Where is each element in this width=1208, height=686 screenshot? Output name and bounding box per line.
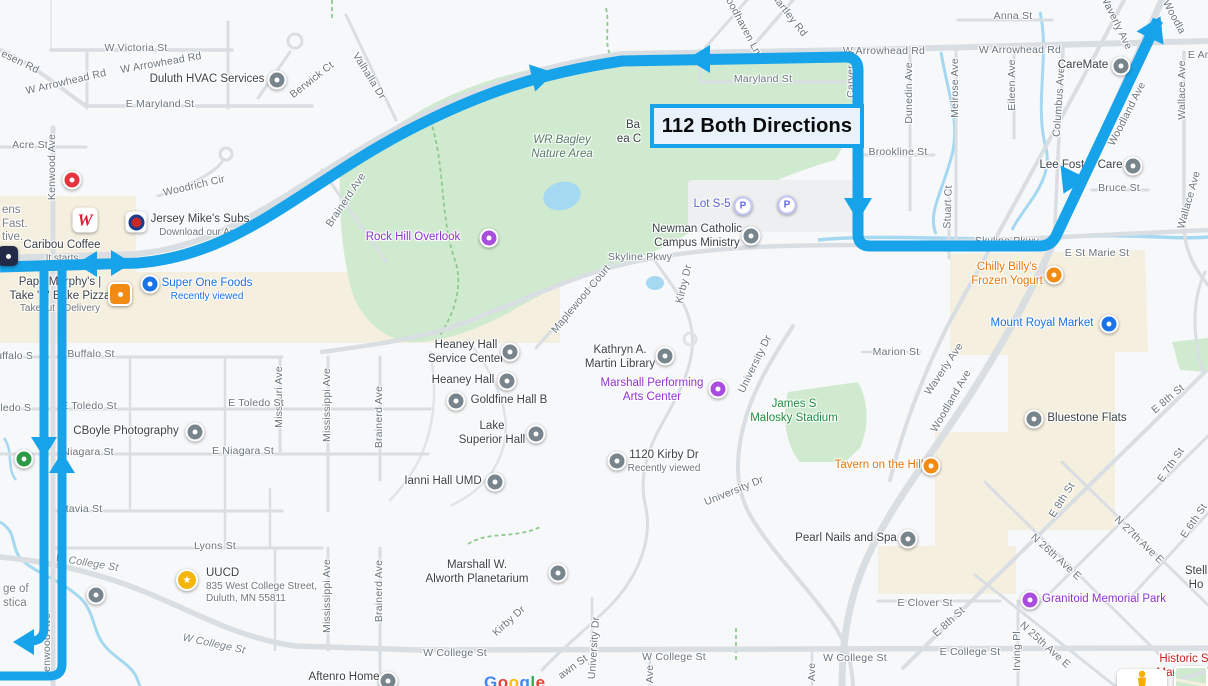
street-label: E 8th St — [1149, 382, 1187, 416]
pins-layer: ★WPP — [0, 0, 1208, 686]
poi-pin[interactable] — [899, 530, 918, 549]
street-label: Kenwood Ave — [41, 613, 53, 679]
google-watermark: Google — [484, 673, 546, 686]
street-label: W Arrowhead Rd — [25, 67, 108, 97]
poi-label[interactable]: Granitoid Memorial Park — [1042, 593, 1166, 607]
poi-label[interactable]: Aftenro Home — [309, 671, 380, 685]
street-label: Woodhaven Ln — [719, 0, 764, 57]
street-label: esen Rd — [0, 48, 41, 77]
street-label: W Victoria St — [104, 42, 167, 54]
street-label: E Niagara St — [212, 445, 274, 457]
poi-pin[interactable] — [1025, 410, 1044, 429]
poi-pin[interactable] — [87, 586, 106, 605]
poi-pin[interactable] — [141, 275, 160, 294]
pegman-icon — [1135, 669, 1149, 686]
street-label: Niagara St — [62, 446, 114, 458]
poi-label[interactable]: Marshall PerformingArts Center — [601, 377, 704, 404]
street-label: Maryland St — [734, 73, 792, 85]
street-label: Hartley Rd — [768, 0, 809, 39]
poi-pin[interactable] — [480, 229, 499, 248]
street-label: Brainerd Ave — [324, 171, 369, 229]
street-label: Skyline Pkwy — [608, 251, 672, 263]
poi-label[interactable]: Bluestone Flats — [1047, 412, 1126, 426]
poi-pin[interactable] — [379, 672, 398, 686]
poi-pin[interactable] — [1112, 57, 1131, 76]
poi-label[interactable]: Pearl Nails and Spa — [795, 532, 897, 546]
street-label: Irving Pl — [1011, 631, 1023, 671]
street-label: Maplewood Court — [549, 262, 613, 335]
street-label: Wallace Ave — [1175, 170, 1203, 230]
poi-label[interactable]: Goldfine Hall B — [471, 394, 548, 408]
poi-label[interactable]: Tavern on the Hill — [835, 459, 924, 473]
street-label: Marion St — [873, 346, 920, 358]
trails — [332, 0, 736, 660]
street-label: N 27th Ave E — [1112, 514, 1166, 567]
street-label: awn St — [556, 652, 590, 681]
street-label: W College St — [823, 652, 887, 664]
poi-label[interactable]: CBoyle Photography — [73, 425, 178, 439]
poi-label[interactable]: Mount Royal Market — [991, 317, 1094, 331]
poi-label[interactable]: ensFast.tive. — [2, 204, 28, 245]
poi-pin[interactable] — [268, 71, 287, 90]
street-label: Kirby Dr — [490, 603, 527, 638]
poi-label[interactable]: Ba — [626, 119, 640, 133]
street-label: Dunedin Ave — [903, 62, 915, 124]
street-label: E 8th St — [1047, 480, 1078, 519]
street-label: Berwick Ct — [288, 59, 337, 101]
street-label: E St Marie St — [1065, 247, 1129, 259]
street-label: Brainerd Ave — [373, 560, 385, 622]
street-label: Buffalo S — [0, 350, 33, 362]
street-label: E Arr — [1188, 49, 1208, 61]
poi-label[interactable]: CareMate — [1058, 59, 1109, 73]
street-label: E College St — [940, 646, 1001, 658]
poi-label[interactable]: WR BagleyNature Area — [531, 134, 593, 161]
street-label: Ave — [644, 665, 656, 684]
poi-pin[interactable] — [1124, 157, 1143, 176]
route-direction-arrows — [13, 10, 1174, 655]
street-label: Woodrich Cir — [162, 173, 226, 199]
poi-label[interactable]: ea C — [617, 133, 641, 147]
street-label: Stuart Ct — [941, 185, 955, 229]
street-label: tavia St — [66, 503, 103, 515]
street-label: W Arrowhead Rd — [979, 44, 1061, 56]
poi-pin[interactable] — [656, 347, 675, 366]
street-label: Columbus Ave — [1051, 67, 1068, 138]
route-badge-label: 112 Both Directions — [662, 115, 853, 138]
poi-label[interactable]: UUCD835 West College Street,Duluth, MN 5… — [206, 567, 317, 606]
street-label: Eileen Ave — [1006, 59, 1018, 110]
street-label: W College St — [182, 632, 247, 657]
street-label: Lyons St — [194, 540, 236, 552]
street-label: E 8th St — [931, 605, 968, 640]
street-label: Anna St — [994, 10, 1033, 22]
poi-pin[interactable] — [1021, 591, 1040, 610]
street-label: University Dr — [586, 616, 602, 679]
poi-pin[interactable]: ★ — [176, 569, 198, 591]
street-label: Bruce St — [1098, 182, 1140, 194]
street-label: Wallace Ave — [1176, 60, 1188, 119]
poi-label[interactable]: Lot S-5 — [693, 198, 730, 212]
poi-pin[interactable] — [501, 343, 520, 362]
poi-label[interactable]: Duluth HVAC Services — [150, 73, 265, 87]
street-label: Brainerd Ave — [373, 386, 385, 448]
street-label: E Clover St — [897, 597, 952, 609]
street-label: University Dr — [703, 474, 766, 509]
street-label: Woodla — [1160, 0, 1188, 36]
poi-label[interactable]: Heaney HallService Center — [428, 339, 504, 366]
street-label: Woodland Ave — [1106, 80, 1148, 148]
street-label: Toledo S — [0, 402, 31, 414]
poi-pin[interactable] — [498, 372, 517, 391]
street-label: W College St — [423, 647, 487, 659]
poi-pin[interactable] — [1045, 266, 1064, 285]
street-label: W College St — [642, 651, 706, 663]
poi-label[interactable]: Rock Hill Overlook — [366, 231, 461, 245]
street-label: W Arrowhead Rd — [843, 45, 925, 57]
poi-pin[interactable] — [126, 212, 147, 233]
street-label: Valhalla Dr — [350, 50, 388, 101]
poi-pin[interactable] — [447, 392, 466, 411]
poi-label[interactable]: Papa Murphy's |Take 'N' Bake PizzaTakeou… — [10, 276, 111, 316]
street-label: W College St — [55, 552, 120, 574]
dot-pin[interactable] — [63, 171, 82, 190]
pond — [540, 178, 584, 215]
poi-label[interactable]: Chilly Billy'sFrozen Yogurt — [971, 261, 1043, 288]
poi-pin[interactable] — [709, 380, 728, 399]
poi-label[interactable]: Heaney Hall — [432, 374, 495, 388]
street-label: E Toledo St — [61, 400, 117, 412]
poi-label[interactable]: Newman CatholicCampus Ministry — [652, 223, 742, 250]
commercial-area-east — [950, 250, 1148, 530]
poi-label[interactable]: 1120 Kirby DrRecently viewed — [628, 449, 701, 475]
street-label: Waverly Ave — [922, 341, 965, 397]
street-label: N 26th Ave E — [1028, 531, 1083, 582]
pegman-control[interactable] — [1117, 669, 1167, 686]
poi-pin[interactable] — [549, 564, 568, 583]
poi-label[interactable]: Lee Foster Care — [1039, 159, 1122, 173]
street-label: Mississippi Ave — [321, 368, 333, 442]
street-label: Kenwood Ave — [46, 134, 58, 200]
street-label: E Maryland St — [126, 98, 195, 110]
layers-thumbnail[interactable] — [1174, 666, 1208, 686]
poi-label[interactable]: Marshall W.Alworth Planetarium — [426, 559, 529, 586]
poi-pin[interactable] — [0, 246, 18, 266]
poi-label[interactable]: Kathryn A.Martin Library — [585, 344, 655, 371]
route-badge: 112 Both Directions — [650, 104, 864, 148]
parking-pin[interactable]: P — [734, 197, 753, 216]
poi-pin[interactable] — [486, 473, 505, 492]
poi-pin[interactable] — [608, 452, 627, 471]
street-label: Waverly Ave — [1097, 0, 1134, 52]
poi-pin[interactable] — [527, 425, 546, 444]
poi-pin[interactable] — [1100, 315, 1119, 334]
street-label: Kirby Dr — [673, 263, 694, 304]
street-label: E 7th St — [1155, 445, 1187, 484]
poi-pin[interactable] — [922, 457, 941, 476]
street-label: N 25th Ave E — [1017, 619, 1072, 670]
street-label: Brookline St — [868, 146, 927, 158]
poi-pin[interactable] — [186, 423, 205, 442]
street-label: E Toledo St — [228, 397, 284, 409]
poi-label[interactable]: Caribou CoffeeIt starts — [23, 239, 100, 265]
poi-pin[interactable] — [742, 227, 761, 246]
street-label: Woodland Ave — [928, 368, 973, 434]
parking-pin[interactable]: P — [778, 196, 797, 215]
street-label: Carver Av — [845, 50, 857, 98]
street-label: Mississippi Ave — [321, 559, 333, 633]
dot-pin[interactable] — [15, 450, 34, 469]
poi-label[interactable]: James SMalosky Stadium — [750, 398, 838, 425]
poi-label[interactable]: Ianni Hall UMD — [404, 475, 481, 489]
street-label: Acre St — [12, 139, 48, 151]
poi-label[interactable]: ge ofstica — [3, 583, 29, 610]
street-label: University Dr — [736, 333, 774, 395]
wal-pin[interactable]: W — [73, 208, 98, 233]
poi-label[interactable]: LakeSuperior Hall — [459, 420, 525, 447]
creek — [1012, 12, 1047, 230]
poi-label[interactable]: StellHo — [1185, 565, 1207, 592]
street-label: Skyline Pkwy — [975, 235, 1039, 247]
street-label: Missouri Ave — [273, 366, 285, 428]
route-112-line — [0, 20, 1158, 676]
poi-label[interactable]: Jersey Mike's SubsDownload our App — [151, 213, 250, 239]
street-label: Ave — [806, 663, 818, 682]
poi-pin[interactable] — [108, 282, 132, 306]
street-label: Melrose Ave — [949, 58, 961, 118]
poi-label[interactable]: Super One FoodsRecently viewed — [162, 277, 253, 303]
map-canvas[interactable]: W Victoria Stesen RdE Maryland StAcre St… — [0, 0, 1208, 686]
street-label: E 6th St — [1178, 501, 1208, 540]
street-label: Buffalo St — [67, 348, 114, 360]
